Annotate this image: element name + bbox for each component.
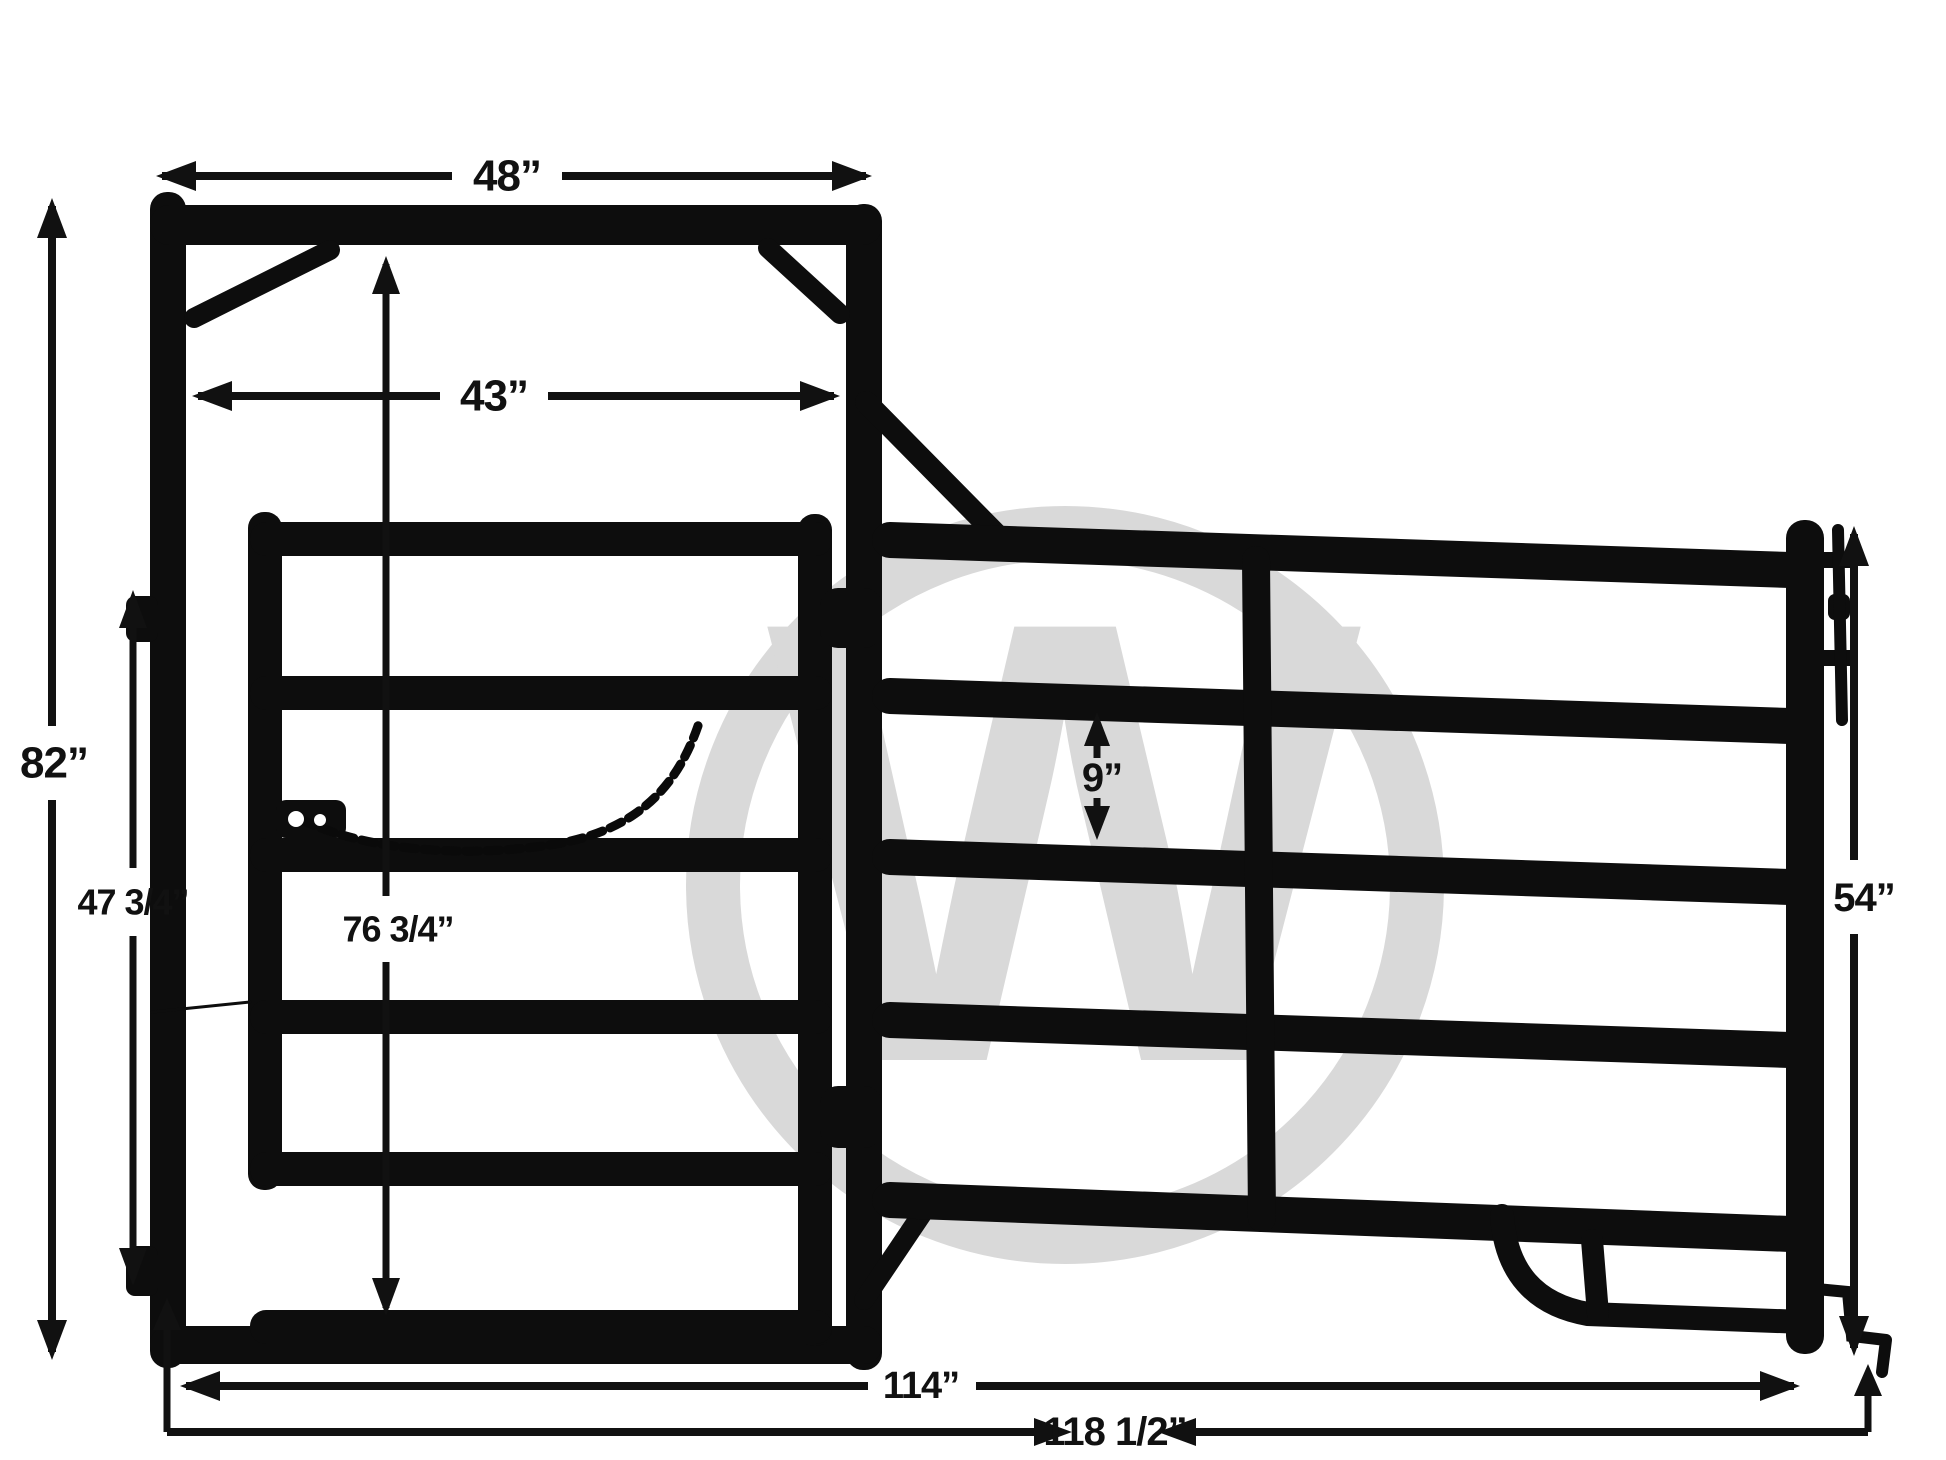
- dim-label-82: 82”: [20, 739, 88, 788]
- gate-hinge-collar-upper: [820, 588, 882, 648]
- gusset-top-left: [194, 250, 330, 318]
- dim-opening-width: 43”: [192, 372, 840, 421]
- dim-label-114: 114”: [883, 1365, 959, 1407]
- gate-rail: [250, 522, 832, 556]
- dim-panel-length: 114”: [180, 1365, 1800, 1407]
- arrowhead-up: [372, 256, 400, 294]
- right-post-group: [1786, 520, 1824, 1354]
- arrowhead-right: [832, 161, 872, 191]
- dim-frame-width: 48”: [156, 152, 872, 201]
- dim-label-76-3-4: 76 3/4”: [342, 909, 453, 950]
- latch-hole: [288, 811, 304, 827]
- panel-dimension-diagram: W: [0, 0, 1946, 1460]
- gate-rail: [250, 676, 832, 710]
- latch-hole: [314, 814, 326, 826]
- latch-chain: [302, 720, 700, 851]
- panel-right-post: [1786, 520, 1824, 1354]
- dim-label-47-3-4: 47 3/4”: [77, 882, 188, 923]
- dim-label-118-1-2: 118 1/2”: [1043, 1410, 1186, 1454]
- gate-hinge-collar-lower: [820, 1086, 882, 1148]
- arrowhead-left: [156, 161, 196, 191]
- gate-rail: [250, 1152, 832, 1186]
- arrowhead-right: [1760, 1371, 1800, 1401]
- latch-chain-group: [288, 720, 700, 851]
- diagram-svg: W: [0, 0, 1946, 1460]
- arrowhead-left: [180, 1371, 220, 1401]
- frame-left-post: [150, 192, 186, 1368]
- dim-label-43: 43”: [460, 372, 528, 421]
- arrowhead-down: [37, 1320, 67, 1360]
- arrowhead-up: [37, 198, 67, 238]
- dim-label-9: 9”: [1082, 756, 1122, 800]
- connector-pin-rod: [1838, 530, 1842, 720]
- gusset-top-right: [768, 248, 840, 314]
- panel-skid-stub: [1592, 1240, 1598, 1314]
- gate-rail: [250, 1310, 832, 1344]
- arrowhead-right: [800, 381, 840, 411]
- dim-label-48: 48”: [473, 152, 541, 201]
- gate-rail: [250, 1000, 832, 1034]
- panel-vertical-stay: [1256, 560, 1262, 1218]
- dim-label-54: 54”: [1833, 876, 1895, 920]
- dim-frame-height: 82”: [20, 198, 88, 1360]
- arrowhead-left: [192, 381, 232, 411]
